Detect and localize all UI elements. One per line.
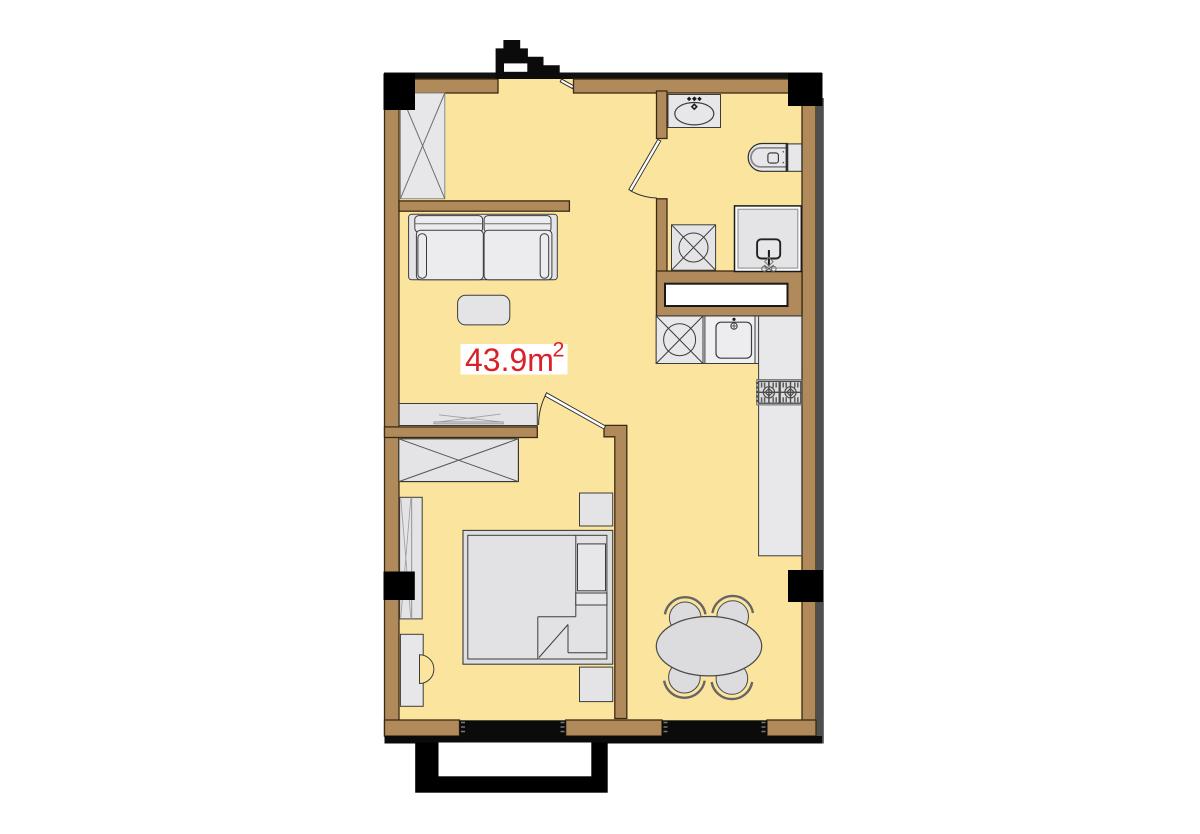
svg-text:2: 2 — [553, 338, 565, 362]
svg-text:43.9m: 43.9m — [465, 342, 554, 378]
